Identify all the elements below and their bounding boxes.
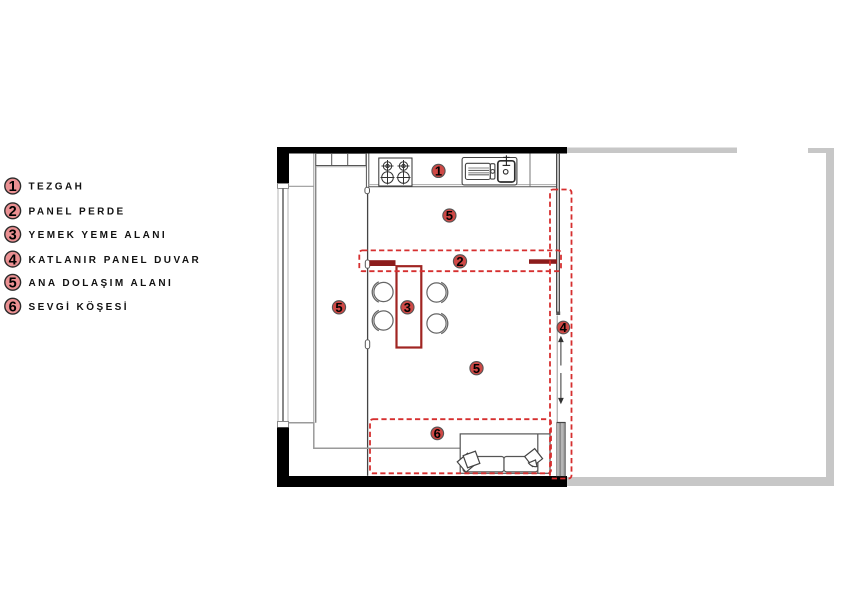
svg-text:4: 4: [9, 252, 17, 268]
svg-text:6: 6: [434, 426, 441, 441]
svg-text:4: 4: [560, 320, 568, 335]
svg-text:5: 5: [335, 300, 342, 315]
svg-text:2: 2: [456, 254, 463, 269]
svg-text:3: 3: [9, 228, 17, 244]
svg-text:TEZGAH: TEZGAH: [29, 182, 85, 193]
svg-text:5: 5: [9, 276, 17, 292]
svg-text:5: 5: [473, 361, 480, 376]
svg-text:5: 5: [446, 208, 453, 223]
svg-text:KATLANIR PANEL DUVAR: KATLANIR PANEL DUVAR: [29, 255, 202, 266]
svg-text:2: 2: [9, 204, 17, 220]
svg-text:YEMEK YEME ALANI: YEMEK YEME ALANI: [29, 230, 168, 241]
svg-text:6: 6: [9, 299, 17, 315]
svg-text:PANEL PERDE: PANEL PERDE: [29, 207, 126, 218]
svg-text:3: 3: [404, 300, 411, 315]
svg-text:1: 1: [9, 179, 17, 195]
svg-text:1: 1: [435, 164, 442, 179]
svg-text:SEVGİ KÖŞESİ: SEVGİ KÖŞESİ: [29, 300, 130, 313]
svg-text:ANA DOLAŞIM ALANI: ANA DOLAŞIM ALANI: [29, 278, 174, 289]
